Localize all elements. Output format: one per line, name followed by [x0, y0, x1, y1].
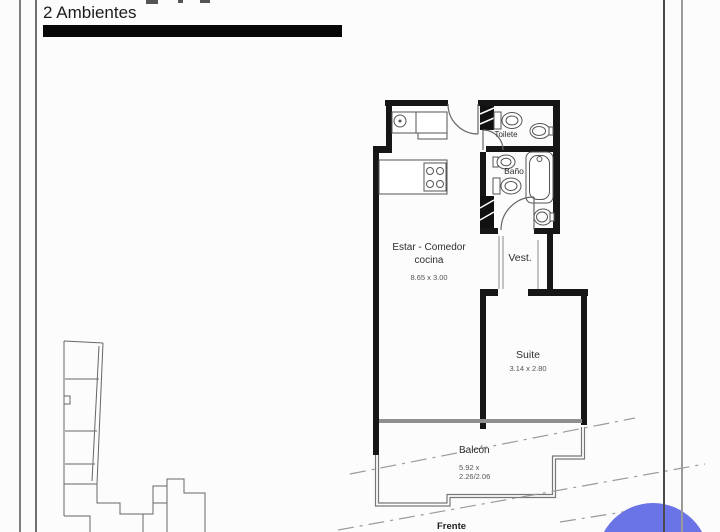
room-label-balcon: Balcón 5.92 x 2.26/2.06 — [459, 445, 539, 481]
toilet-icon — [493, 178, 521, 194]
room-name: Balcón — [459, 445, 539, 458]
cropped-text-artifact — [178, 0, 183, 3]
room-label-bano: Baño — [494, 166, 534, 177]
room-name: Suite — [488, 349, 568, 362]
door-swing-icon — [448, 104, 478, 134]
room-dimensions: 3.14 x 2.80 — [488, 364, 568, 373]
page-title: 2 Ambientes — [43, 3, 137, 23]
room-label-toilete: Toilete — [484, 130, 528, 140]
room-name: cocina — [368, 255, 490, 268]
washbasin-icon — [534, 209, 554, 225]
room-label-vest: Vest. — [498, 252, 542, 265]
toilet-icon — [494, 112, 522, 129]
cropped-text-artifact — [200, 0, 210, 3]
room-name: Estar - Comedor — [368, 242, 490, 255]
room-dimensions: 5.92 x 2.26/2.06 — [459, 463, 539, 482]
duct-shaft-icon — [480, 106, 494, 130]
page-border-line — [35, 0, 37, 532]
room-dimensions-line: 5.92 x — [459, 463, 539, 472]
room-dimensions: 8.65 x 3.00 — [368, 273, 490, 282]
bathtub-icon — [526, 152, 553, 203]
cropped-text-artifact — [146, 0, 158, 4]
page-border-line — [663, 0, 665, 532]
page-border-line — [19, 0, 21, 532]
duct-shaft-icon — [480, 196, 494, 228]
floor-plan-drawing — [0, 0, 720, 532]
floor-plan-page: 2 Ambientes — [0, 0, 720, 532]
room-label-suite: Suite 3.14 x 2.80 — [488, 349, 568, 374]
page-border-line — [681, 0, 683, 532]
stove-icon — [424, 163, 446, 191]
window-band — [379, 419, 582, 423]
room-label-estar: Estar - Comedor cocina 8.65 x 3.00 — [368, 242, 490, 282]
washbasin-icon — [530, 124, 553, 139]
neighbor-building-outline — [64, 341, 205, 532]
room-dimensions-line: 2.26/2.06 — [459, 472, 539, 481]
frente-label: Frente — [437, 521, 497, 532]
title-underline-bar — [43, 25, 342, 37]
kitchen-sink-icon — [392, 112, 416, 133]
